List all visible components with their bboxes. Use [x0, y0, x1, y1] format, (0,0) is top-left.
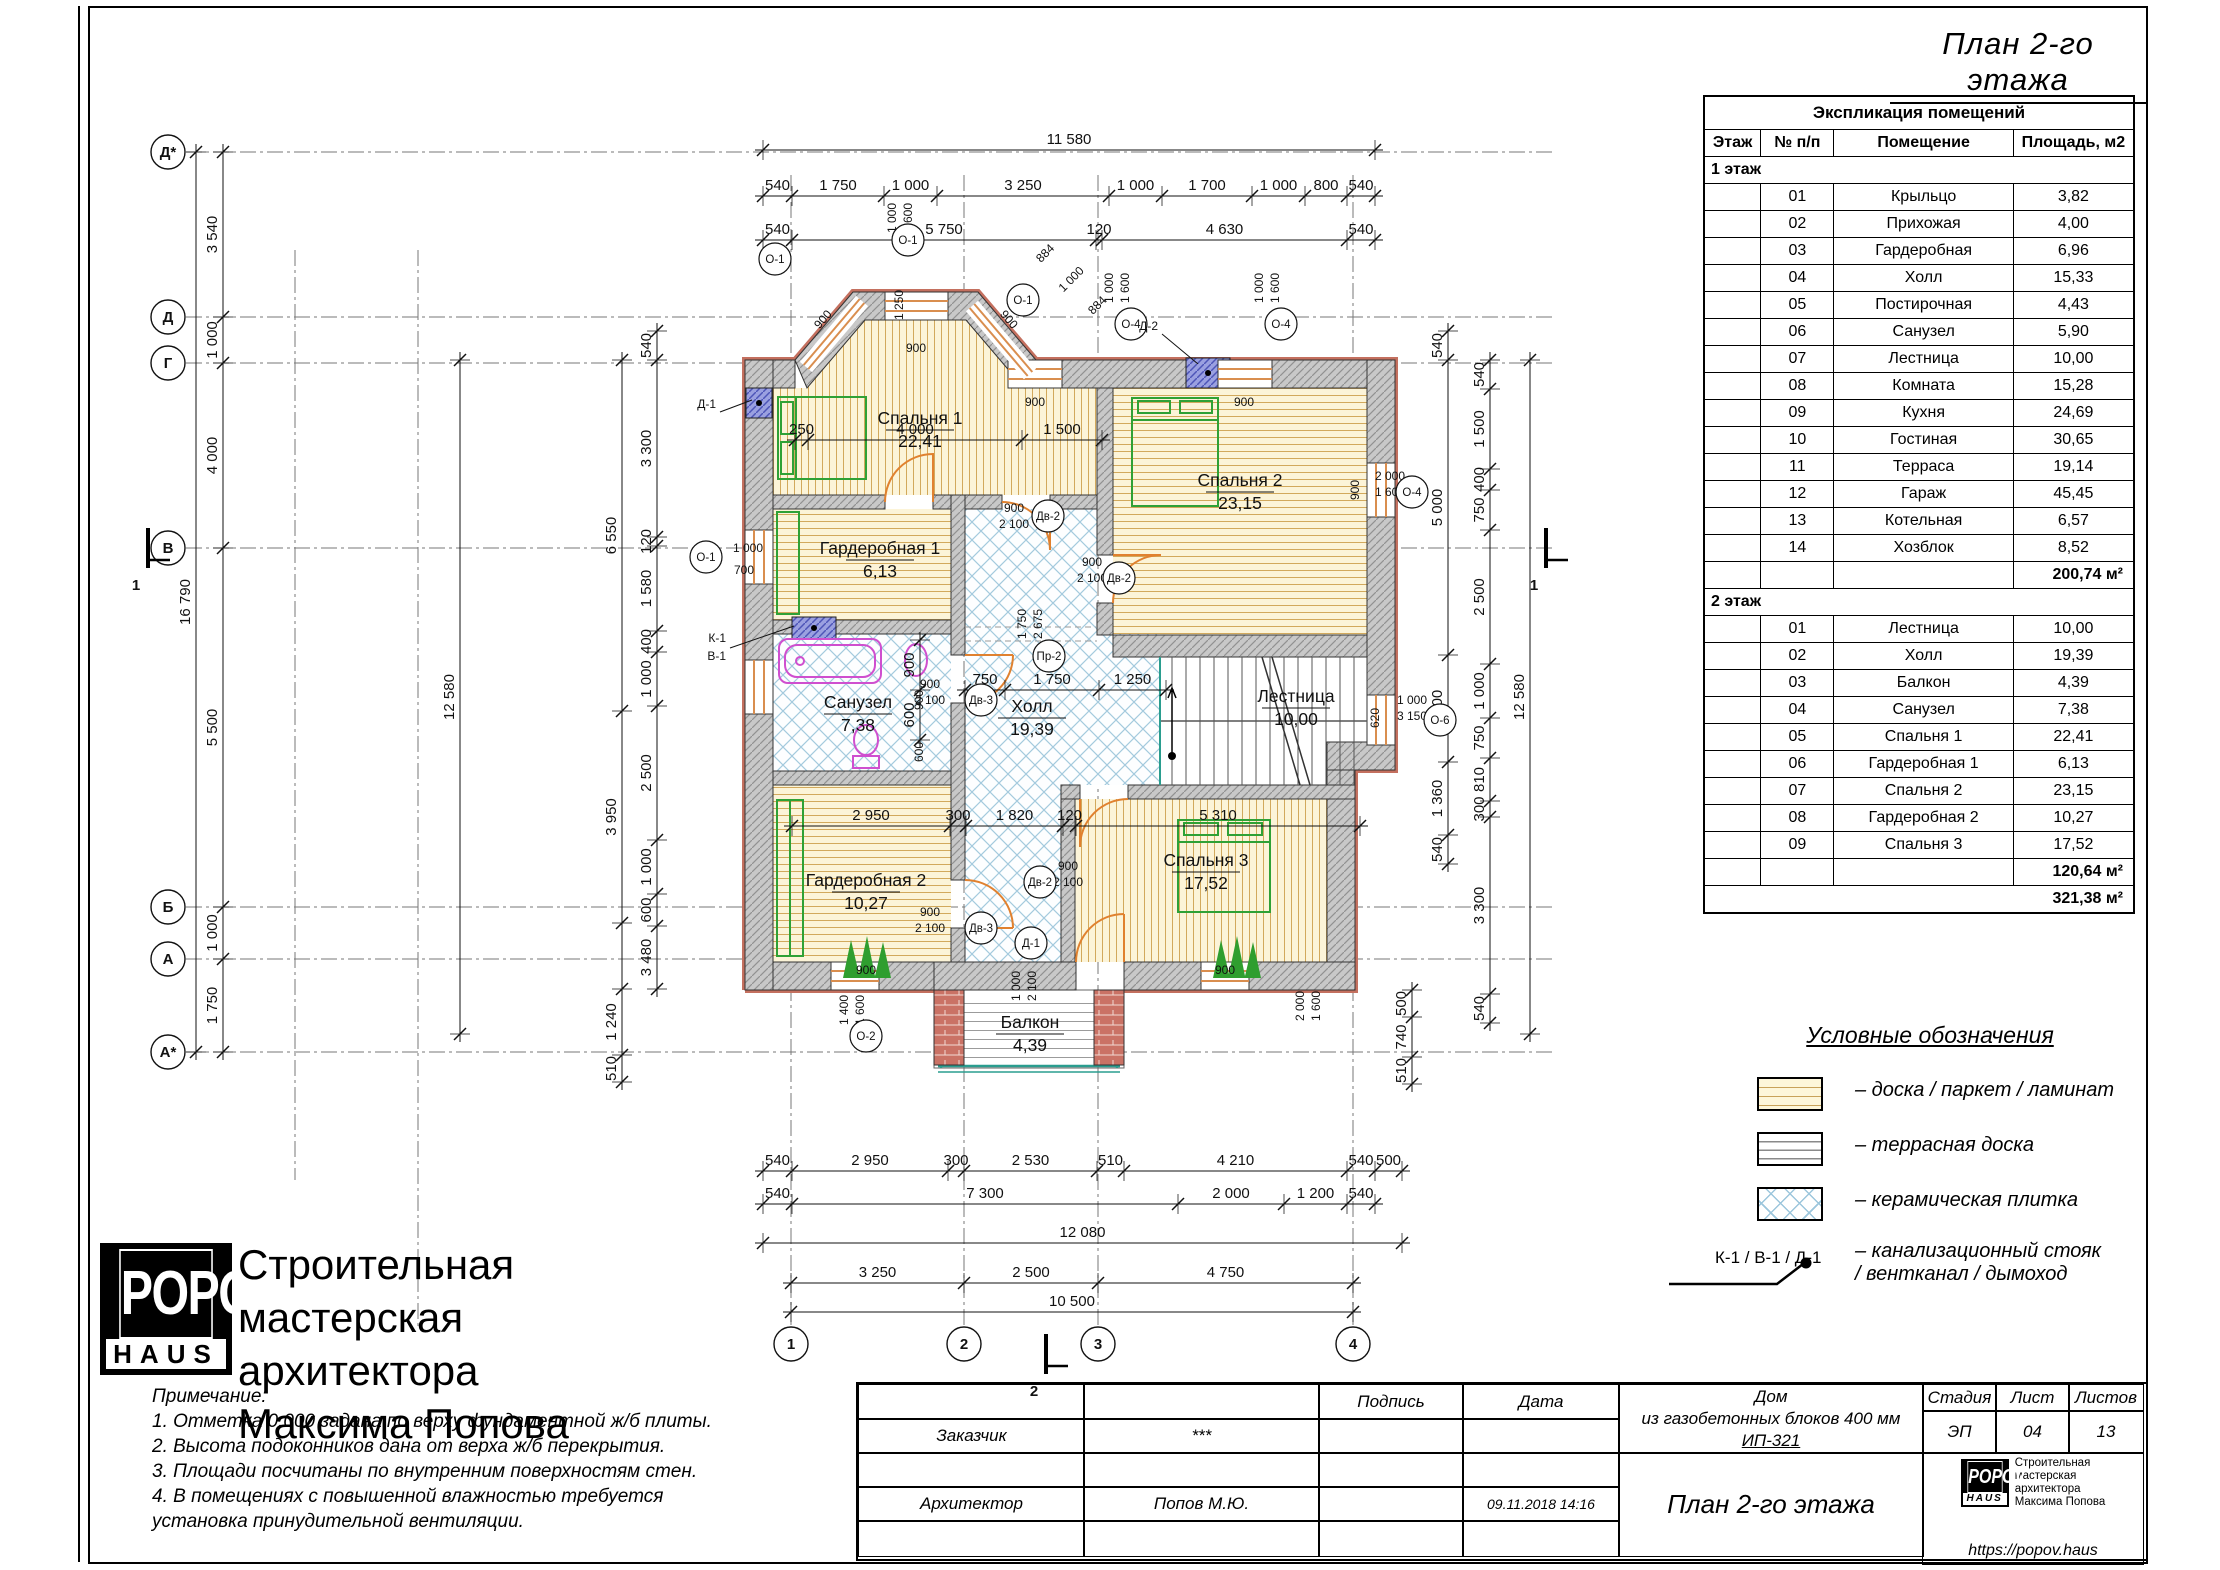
- explication-cell: Гардеробная 2: [1834, 805, 2013, 832]
- explication-cell: 05: [1761, 292, 1834, 319]
- explication-cell: Хозблок: [1834, 535, 2013, 562]
- explication-cell: 06: [1761, 319, 1834, 346]
- tb-sheet-title: План 2-го этажа: [1618, 1452, 1924, 1557]
- explication-cell: 15,28: [2013, 373, 2134, 400]
- tb-stage-value: ЭП: [1922, 1410, 1997, 1454]
- page-title: План 2-го этажа: [1890, 26, 2146, 104]
- company-name-line: Максима Попова: [238, 1397, 798, 1450]
- tb-sheets-value: 13: [2068, 1410, 2144, 1454]
- titleblock-logo: POPOV HAUS: [1961, 1459, 2009, 1507]
- legend-swatch-icon: [1757, 1187, 1823, 1221]
- explication-row: 08Комната15,28: [1704, 373, 2134, 400]
- explication-cell: [1704, 697, 1761, 724]
- explication-cell: [1704, 319, 1761, 346]
- explication-cell: [1834, 562, 2013, 589]
- tb-empty: [1462, 1452, 1620, 1488]
- legend: Условные обозначения – доска / паркет / …: [1715, 1022, 2145, 1295]
- note-line: 3. Площади посчитаны по внутренним повер…: [152, 1459, 732, 1484]
- explication-cell: 09: [1761, 400, 1834, 427]
- explication-cell: Лестница: [1834, 346, 2013, 373]
- explication-cell: [1704, 508, 1761, 535]
- explication-cell: 30,65: [2013, 427, 2134, 454]
- explication-row: 07Спальня 223,15: [1704, 778, 2134, 805]
- explication-cell: 07: [1761, 346, 1834, 373]
- explication-cell: Холл: [1834, 265, 2013, 292]
- legend-swatch-icon: [1757, 1132, 1823, 1166]
- explication-row: 01Лестница10,00: [1704, 616, 2134, 643]
- explication-cell: 10,00: [2013, 616, 2134, 643]
- explication-cell: № п/п: [1761, 130, 1834, 157]
- explication-cell: 02: [1761, 643, 1834, 670]
- explication-cell: [1704, 238, 1761, 265]
- logo-haus-text: HAUS: [106, 1339, 226, 1369]
- company-name-line: архитектора: [238, 1344, 798, 1397]
- explication-cell: 02: [1761, 211, 1834, 238]
- explication-cell: 22,41: [2013, 724, 2134, 751]
- explication-cell: Санузел: [1834, 319, 2013, 346]
- explication-cell: 19,14: [2013, 454, 2134, 481]
- explication-cell: 04: [1761, 265, 1834, 292]
- explication-cell: [1704, 265, 1761, 292]
- explication-cell: Холл: [1834, 643, 2013, 670]
- explication-row: 09Кухня24,69: [1704, 400, 2134, 427]
- logo-popov-text: POPOV: [119, 1249, 213, 1339]
- tb-empty: [1083, 1452, 1320, 1488]
- explication-cell: 10: [1761, 427, 1834, 454]
- tb-customer-value: ***: [1083, 1418, 1320, 1454]
- company-name-line: Строительная: [238, 1238, 798, 1291]
- explication-cell: Санузел: [1834, 697, 2013, 724]
- explication-cell: [1704, 643, 1761, 670]
- explication-cell: 4,39: [2013, 670, 2134, 697]
- explication-row: 10Гостиная30,65: [1704, 427, 2134, 454]
- explication-cell: Гостиная: [1834, 427, 2013, 454]
- explication-row: 03Гардеробная6,96: [1704, 238, 2134, 265]
- explication-row: 05Спальня 122,41: [1704, 724, 2134, 751]
- note-line: 4. В помещениях с повышенной влажностью …: [152, 1484, 732, 1534]
- legend-swatch-icon: [1757, 1077, 1823, 1111]
- tb-date-header: Дата: [1462, 1384, 1620, 1420]
- legend-stack-desc: – канализационный стояк / вентканал / ды…: [1855, 1240, 2101, 1286]
- tb-empty: [858, 1520, 1085, 1557]
- legend-item: – керамическая плитка: [1715, 1185, 2145, 1240]
- tb-architect-label: Архитектор: [858, 1486, 1085, 1522]
- explication-cell: [1704, 562, 1761, 589]
- explication-cell: [1704, 427, 1761, 454]
- explication-row: 04Санузел7,38: [1704, 697, 2134, 724]
- tb-customer-label: Заказчик: [858, 1418, 1085, 1454]
- explication-cell: [1704, 211, 1761, 238]
- tb-project-line2: из газобетонных блоков 400 мм: [1642, 1408, 1901, 1430]
- explication-cell: 7,38: [2013, 697, 2134, 724]
- explication-cell: [1704, 859, 1761, 886]
- explication-cell: [1704, 184, 1761, 211]
- explication-row: 06Санузел5,90: [1704, 319, 2134, 346]
- explication-cell: 13: [1761, 508, 1834, 535]
- explication-cell: [1704, 454, 1761, 481]
- explication-cell: 01: [1761, 616, 1834, 643]
- explication-cell: [1761, 562, 1834, 589]
- legend-item-label: – керамическая плитка: [1855, 1189, 2078, 1212]
- explication-cell: 6,96: [2013, 238, 2134, 265]
- legend-item: – террасная доска: [1715, 1130, 2145, 1185]
- explication-cell: [1704, 751, 1761, 778]
- explication-row: 09Спальня 317,52: [1704, 832, 2134, 859]
- tb-empty: [1462, 1520, 1620, 1557]
- tb-logo-popov: POPOV: [1967, 1461, 2002, 1493]
- tb-website[interactable]: https://popov.haus: [1968, 1542, 2098, 1560]
- explication-row: 11Терраса19,14: [1704, 454, 2134, 481]
- tb-sheet-value: 04: [1995, 1410, 2070, 1454]
- title-block: Подпись Дата Заказчик *** Архитектор Поп…: [856, 1382, 2148, 1561]
- company-logo: POPOV HAUS: [100, 1243, 232, 1375]
- explication-cell: Лестница: [1834, 616, 2013, 643]
- tb-empty: [1462, 1418, 1620, 1454]
- explication-cell: Гардеробная: [1834, 238, 2013, 265]
- tb-stage-label: Стадия: [1922, 1384, 1997, 1412]
- explication-row: 07Лестница10,00: [1704, 346, 2134, 373]
- explication-cell: [1704, 535, 1761, 562]
- tb-empty: [1083, 1520, 1320, 1557]
- explication-row: 03Балкон4,39: [1704, 670, 2134, 697]
- tb-architect-value: Попов М.Ю.: [1083, 1486, 1320, 1522]
- explication-cell: 6,13: [2013, 751, 2134, 778]
- explication-row: 04Холл15,33: [1704, 265, 2134, 292]
- explication-cell: 6,57: [2013, 508, 2134, 535]
- tb-empty: [858, 1452, 1085, 1488]
- tb-date-value: 09.11.2018 14:16: [1462, 1486, 1620, 1522]
- explication-cell: 24,69: [2013, 400, 2134, 427]
- explication-row: 14Хозблок8,52: [1704, 535, 2134, 562]
- tb-sheet-label: Лист: [1995, 1384, 2070, 1412]
- explication-cell: Терраса: [1834, 454, 2013, 481]
- explication-cell: [1704, 292, 1761, 319]
- explication-cell: Прихожая: [1834, 211, 2013, 238]
- legend-item-label: – доска / паркет / ламинат: [1855, 1079, 2114, 1102]
- explication-cell: Этаж: [1704, 130, 1761, 157]
- explication-cell: 2 этаж: [1704, 589, 2134, 616]
- explication-cell: 120,64 м²: [2013, 859, 2134, 886]
- explication-row: 08Гардеробная 210,27: [1704, 805, 2134, 832]
- explication-cell: 04: [1761, 697, 1834, 724]
- tb-empty: [1318, 1452, 1464, 1488]
- explication-cell: 15,33: [2013, 265, 2134, 292]
- explication-cell: 1 этаж: [1704, 157, 2134, 184]
- explication-cell: 3,82: [2013, 184, 2134, 211]
- explication-cell: Гардеробная 1: [1834, 751, 2013, 778]
- explication-cell: Крыльцо: [1834, 184, 2013, 211]
- explication-cell: Кухня: [1834, 400, 2013, 427]
- explication-cell: 05: [1761, 724, 1834, 751]
- company-name: СтроительнаямастерскаяархитектораМаксима…: [238, 1238, 798, 1450]
- stack-label: К-1 / В-1 / Д-1: [1715, 1248, 1821, 1268]
- explication-cell: 03: [1761, 670, 1834, 697]
- explication-cell: [1704, 373, 1761, 400]
- tb-project-line1: Дом: [1754, 1386, 1787, 1408]
- explication-row: 06Гардеробная 16,13: [1704, 751, 2134, 778]
- explication-table: Экспликация помещенийЭтаж№ п/пПомещениеП…: [1703, 95, 2135, 914]
- explication-cell: 19,39: [2013, 643, 2134, 670]
- explication-cell: 200,74 м²: [2013, 562, 2134, 589]
- tb-sheets-label: Листов: [2068, 1384, 2144, 1412]
- explication-cell: Экспликация помещений: [1704, 96, 2134, 130]
- legend-item-stack: К-1 / В-1 / Д-1 – канализационный стояк …: [1715, 1240, 2145, 1295]
- explication-cell: 8,52: [2013, 535, 2134, 562]
- legend-item: – доска / паркет / ламинат: [1715, 1075, 2145, 1130]
- explication-cell: 08: [1761, 805, 1834, 832]
- explication-cell: Комната: [1834, 373, 2013, 400]
- explication-cell: [1704, 400, 1761, 427]
- tb-empty: [1083, 1384, 1320, 1420]
- tb-sign-header: Подпись: [1318, 1384, 1464, 1420]
- explication-cell: Гараж: [1834, 481, 2013, 508]
- explication-cell: 4,43: [2013, 292, 2134, 319]
- tb-company-name: СтроительнаямастерскаяархитектораМаксима…: [2015, 1457, 2106, 1509]
- explication-cell: 23,15: [2013, 778, 2134, 805]
- explication-row: 02Прихожая4,00: [1704, 211, 2134, 238]
- explication-cell: Спальня 2: [1834, 778, 2013, 805]
- explication-cell: [1704, 616, 1761, 643]
- explication-cell: [1704, 778, 1761, 805]
- explication-cell: [1704, 346, 1761, 373]
- explication-cell: 01: [1761, 184, 1834, 211]
- legend-item-label: – террасная доска: [1855, 1134, 2034, 1157]
- tb-logo-cell: POPOV HAUS Строительнаямастерскаяархитек…: [1922, 1452, 2144, 1565]
- explication-row: 05Постирочная4,43: [1704, 292, 2134, 319]
- explication-cell: [1761, 859, 1834, 886]
- explication-row: 01Крыльцо3,82: [1704, 184, 2134, 211]
- tb-empty: [1318, 1418, 1464, 1454]
- tb-logo-haus: HAUS: [1963, 1493, 2007, 1505]
- explication-cell: Постирочная: [1834, 292, 2013, 319]
- explication-cell: [1704, 670, 1761, 697]
- explication-cell: [1704, 805, 1761, 832]
- explication-cell: [1704, 724, 1761, 751]
- explication-cell: 03: [1761, 238, 1834, 265]
- explication-cell: Котельная: [1834, 508, 2013, 535]
- explication-cell: 10,00: [2013, 346, 2134, 373]
- explication-cell: 4,00: [2013, 211, 2134, 238]
- tb-empty: [1318, 1486, 1464, 1522]
- explication-cell: 11: [1761, 454, 1834, 481]
- explication-cell: [1834, 859, 2013, 886]
- explication-cell: Помещение: [1834, 130, 2013, 157]
- explication-cell: 09: [1761, 832, 1834, 859]
- tb-empty: [858, 1384, 1085, 1420]
- explication-cell: [1704, 832, 1761, 859]
- explication-row: 13Котельная6,57: [1704, 508, 2134, 535]
- explication-cell: Спальня 3: [1834, 832, 2013, 859]
- explication-cell: Спальня 1: [1834, 724, 2013, 751]
- company-name-line: мастерская: [238, 1291, 798, 1344]
- explication-cell: Площадь, м2: [2013, 130, 2134, 157]
- frame-outer-line: [78, 6, 80, 1562]
- explication-cell: 45,45: [2013, 481, 2134, 508]
- explication-cell: 17,52: [2013, 832, 2134, 859]
- explication-cell: 321,38 м²: [1704, 886, 2134, 914]
- explication-cell: 12: [1761, 481, 1834, 508]
- explication-row: 02Холл19,39: [1704, 643, 2134, 670]
- explication-cell: 06: [1761, 751, 1834, 778]
- legend-title: Условные обозначения: [1715, 1022, 2145, 1049]
- explication-cell: 08: [1761, 373, 1834, 400]
- explication-cell: Балкон: [1834, 670, 2013, 697]
- tb-empty: [1318, 1520, 1464, 1557]
- explication-cell: 10,27: [2013, 805, 2134, 832]
- tb-project-code: ИП-321: [1742, 1430, 1801, 1452]
- tb-project: Дом из газобетонных блоков 400 мм ИП-321: [1618, 1384, 1924, 1454]
- explication-cell: 14: [1761, 535, 1834, 562]
- explication-cell: 07: [1761, 778, 1834, 805]
- explication-cell: 5,90: [2013, 319, 2134, 346]
- explication-row: 12Гараж45,45: [1704, 481, 2134, 508]
- explication-cell: [1704, 481, 1761, 508]
